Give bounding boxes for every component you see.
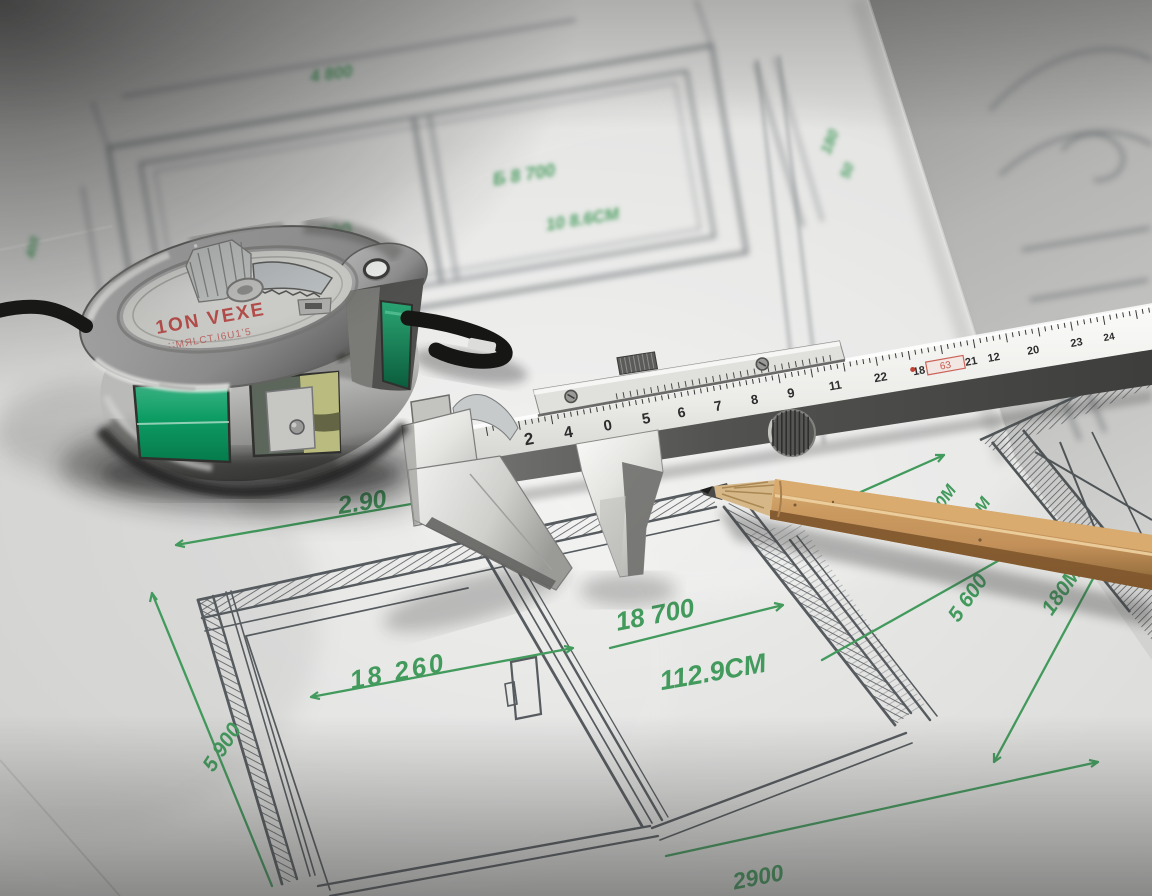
svg-text:22: 22 [873, 369, 889, 385]
svg-text:12: 12 [987, 351, 1001, 365]
svg-text:21: 21 [964, 355, 978, 369]
svg-text:20: 20 [1026, 344, 1040, 358]
svg-text:23: 23 [1069, 336, 1083, 350]
